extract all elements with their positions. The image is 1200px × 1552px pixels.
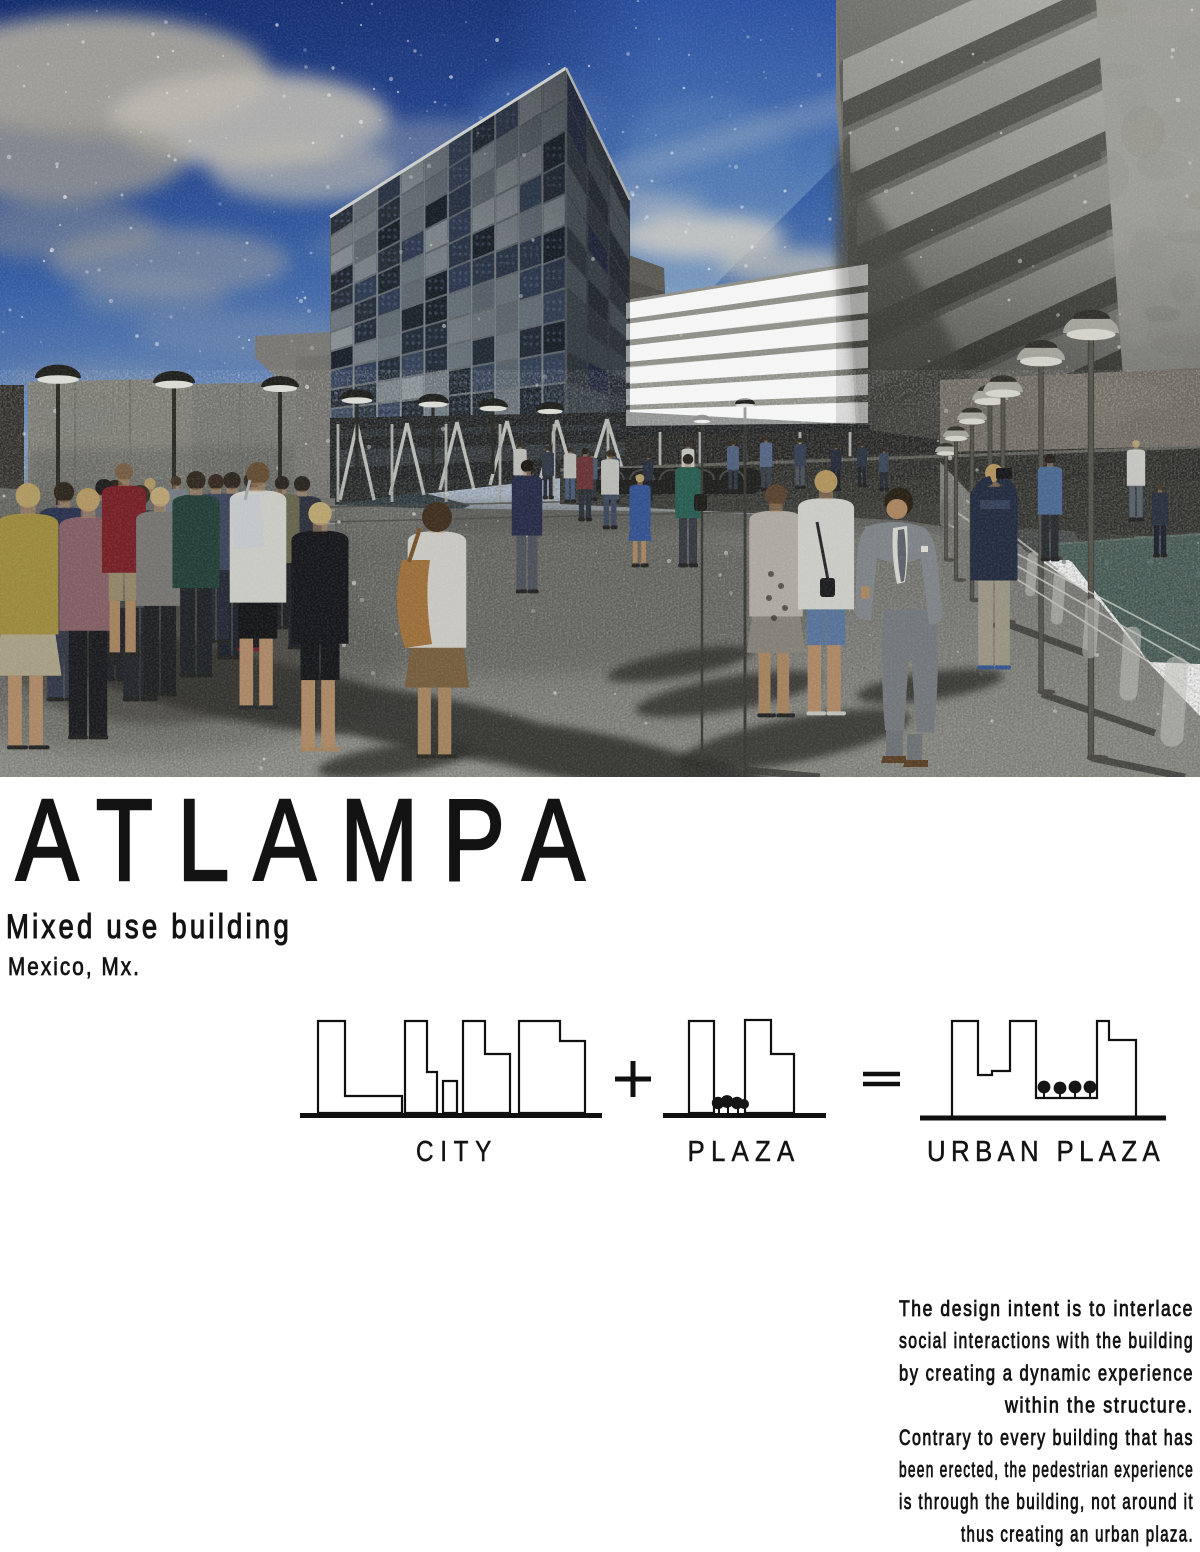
svg-text:social interactions with the b: social interactions with the building [899, 1328, 1194, 1353]
svg-text:CITY: CITY [416, 1136, 498, 1168]
svg-text:The design intent is to interl: The design intent is to interlace [899, 1296, 1194, 1321]
svg-text:by creating a dynamic experien: by creating a dynamic experience [899, 1360, 1194, 1385]
svg-text:Mixed use building: Mixed use building [6, 908, 292, 946]
svg-text:URBAN PLAZA: URBAN PLAZA [927, 1136, 1165, 1168]
svg-text:PLAZA: PLAZA [688, 1136, 801, 1168]
svg-text:Contrary to every building tha: Contrary to every building that has [899, 1425, 1194, 1450]
svg-text:is through the building, not a: is through the building, not around it [899, 1489, 1194, 1514]
svg-text:Mexico, Mx.: Mexico, Mx. [8, 953, 141, 981]
svg-text:been erected, the pedestrian e: been erected, the pedestrian experience [899, 1457, 1194, 1482]
svg-text:ATLAMPA: ATLAMPA [16, 775, 609, 905]
svg-text:thus creating an urban plaza.: thus creating an urban plaza. [961, 1521, 1194, 1546]
svg-text:within the structure.: within the structure. [1004, 1393, 1194, 1418]
